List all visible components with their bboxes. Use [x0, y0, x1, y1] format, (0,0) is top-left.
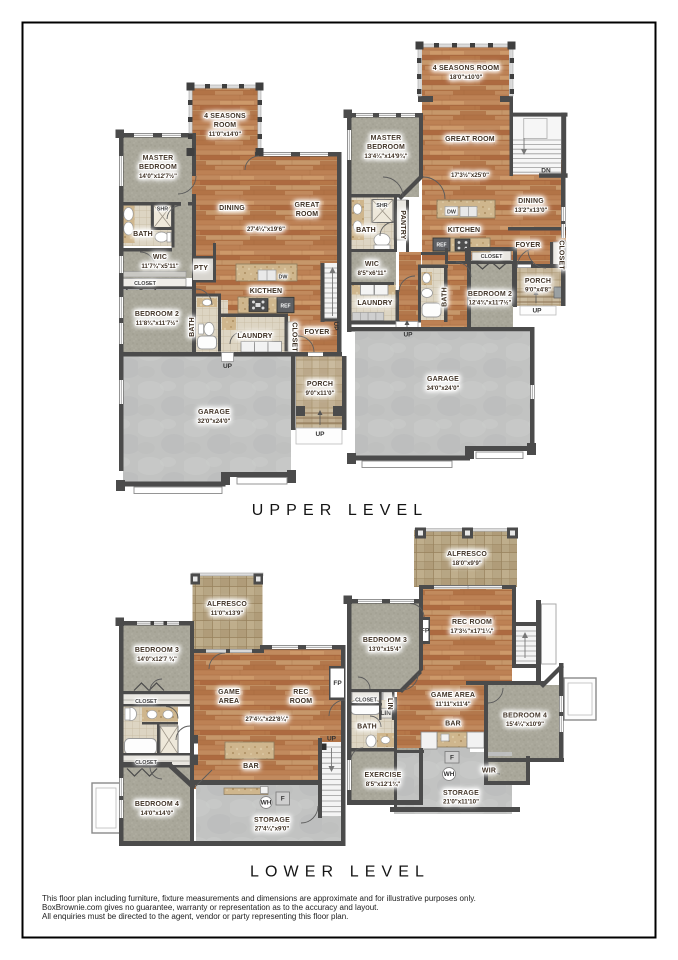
svg-text:BoxBrownie.com gives no guaran: BoxBrownie.com gives no guarantee, warra…	[42, 903, 379, 912]
svg-text:STORAGE: STORAGE	[254, 817, 290, 824]
svg-text:PANTRY: PANTRY	[399, 210, 406, 239]
svg-text:KITCHEN: KITCHEN	[448, 227, 481, 234]
svg-text:LAUNDRY: LAUNDRY	[237, 333, 272, 340]
svg-text:15'4¼"x10'9": 15'4¼"x10'9"	[506, 721, 544, 728]
svg-text:CLOSET: CLOSET	[558, 240, 565, 270]
svg-text:GAME: GAME	[218, 689, 240, 696]
svg-text:CLOSET: CLOSET	[135, 699, 158, 705]
svg-text:MASTER: MASTER	[371, 135, 402, 142]
svg-text:AREA: AREA	[219, 698, 240, 705]
svg-text:BEDROOM: BEDROOM	[139, 164, 177, 171]
svg-text:All enquiries must be directed: All enquiries must be directed to the ag…	[42, 912, 348, 921]
svg-text:BAR: BAR	[445, 721, 461, 728]
svg-text:BEDROOM 4: BEDROOM 4	[503, 713, 547, 720]
svg-text:UP: UP	[532, 308, 542, 315]
svg-text:CLOSET: CLOSET	[134, 281, 157, 287]
svg-text:8'5"x12'1¾": 8'5"x12'1¾"	[366, 781, 401, 788]
svg-text:F: F	[281, 796, 285, 803]
svg-text:13'4¼"x14'9¾": 13'4¼"x14'9¾"	[364, 153, 407, 160]
svg-text:UP: UP	[332, 321, 339, 331]
svg-text:DN: DN	[541, 168, 551, 175]
svg-text:27'4¼"x22'8¼": 27'4¼"x22'8¼"	[245, 716, 288, 723]
svg-text:DINING: DINING	[219, 205, 245, 212]
svg-text:DINING: DINING	[518, 198, 544, 205]
svg-text:PORCH: PORCH	[307, 381, 333, 388]
svg-text:SHR: SHR	[376, 203, 387, 209]
svg-text:BATH: BATH	[442, 287, 449, 307]
svg-text:13'0"x15'4": 13'0"x15'4"	[369, 646, 402, 653]
svg-text:18'0"x10'0": 18'0"x10'0"	[450, 74, 483, 81]
svg-text:BEDROOM 4: BEDROOM 4	[135, 801, 179, 808]
svg-text:17'3½"x17'1¼": 17'3½"x17'1¼"	[450, 628, 493, 635]
svg-text:4 SEASONS ROOM: 4 SEASONS ROOM	[433, 65, 500, 72]
svg-text:WH: WH	[444, 771, 455, 778]
svg-text:CLOSET: CLOSET	[355, 698, 378, 704]
svg-text:KICTHEN: KICTHEN	[250, 288, 283, 295]
svg-text:11'11"x11'4": 11'11"x11'4"	[435, 701, 470, 708]
svg-text:UP: UP	[223, 363, 233, 370]
svg-text:4 SEASONS: 4 SEASONS	[204, 113, 246, 120]
svg-text:11'0"x14'0": 11'0"x14'0"	[209, 131, 242, 138]
svg-text:21'0"x11'10": 21'0"x11'10"	[443, 799, 479, 806]
svg-text:This floor plan including furn: This floor plan including furniture, fix…	[42, 894, 476, 903]
svg-text:BEDROOM 3: BEDROOM 3	[135, 647, 179, 654]
svg-text:ROOM: ROOM	[296, 211, 319, 218]
svg-text:GREAT ROOM: GREAT ROOM	[445, 136, 495, 143]
svg-text:LIN: LIN	[380, 710, 391, 717]
svg-text:18'0"x9'9": 18'0"x9'9"	[452, 560, 482, 567]
svg-text:CLOSET: CLOSET	[481, 254, 504, 260]
svg-text:F: F	[450, 755, 454, 762]
svg-text:ALFRESCO: ALFRESCO	[207, 601, 247, 608]
svg-text:14'0"x14'0": 14'0"x14'0"	[141, 810, 174, 817]
svg-text:LAUNDRY: LAUNDRY	[357, 300, 392, 307]
svg-text:12'4¾"x11'7½": 12'4¾"x11'7½"	[469, 300, 512, 307]
svg-text:UP: UP	[315, 431, 325, 438]
svg-text:STORAGE: STORAGE	[443, 790, 479, 797]
svg-text:BATH: BATH	[133, 231, 153, 238]
svg-text:32'0"x24'0": 32'0"x24'0"	[198, 418, 231, 425]
svg-text:11'8¾"x11'7½": 11'8¾"x11'7½"	[136, 320, 179, 327]
svg-text:BATH: BATH	[357, 724, 377, 731]
svg-text:DW: DW	[447, 210, 457, 216]
svg-text:ALFRESCO: ALFRESCO	[447, 551, 487, 558]
svg-text:ROOM: ROOM	[214, 122, 237, 129]
svg-text:34'0"x24'0": 34'0"x24'0"	[427, 385, 460, 392]
svg-text:SHR: SHR	[157, 207, 168, 213]
svg-text:BEDROOM 3: BEDROOM 3	[363, 637, 407, 644]
svg-text:11'7¾"x5'11": 11'7¾"x5'11"	[141, 263, 178, 270]
svg-text:BATH: BATH	[189, 317, 196, 337]
svg-text:PTY: PTY	[194, 265, 208, 272]
svg-text:9'0"x11'0": 9'0"x11'0"	[305, 390, 334, 397]
svg-text:BAR: BAR	[243, 763, 259, 770]
svg-text:WIC: WIC	[153, 254, 167, 261]
svg-text:UP: UP	[327, 736, 337, 743]
svg-text:REF: REF	[437, 243, 447, 249]
svg-text:BEDROOM 2: BEDROOM 2	[468, 291, 512, 298]
svg-text:WIR: WIR	[482, 768, 496, 775]
svg-text:8'5"x6'11": 8'5"x6'11"	[357, 270, 386, 277]
svg-text:27'4¼"x19'6": 27'4¼"x19'6"	[247, 226, 285, 233]
svg-text:BEDROOM: BEDROOM	[367, 144, 405, 151]
svg-text:11'0"x13'9": 11'0"x13'9"	[211, 610, 244, 617]
svg-text:MASTER: MASTER	[143, 155, 174, 162]
svg-text:FOYER: FOYER	[304, 329, 329, 336]
svg-text:GARAGE: GARAGE	[198, 409, 230, 416]
svg-text:BATH: BATH	[356, 227, 376, 234]
svg-text:GREAT: GREAT	[295, 202, 321, 209]
svg-text:27'4¼"x9'0": 27'4¼"x9'0"	[255, 826, 290, 833]
svg-text:CLOSET: CLOSET	[291, 322, 298, 352]
svg-text:UP: UP	[403, 332, 413, 339]
svg-text:14'0"x12'7½": 14'0"x12'7½"	[139, 173, 177, 180]
svg-text:9'0"x4'8": 9'0"x4'8"	[525, 287, 551, 294]
svg-text:BEDROOM 2: BEDROOM 2	[135, 311, 179, 318]
svg-text:REC: REC	[293, 689, 308, 696]
svg-text:17'3½"x25'0": 17'3½"x25'0"	[451, 172, 489, 179]
svg-text:EXERCISE: EXERCISE	[365, 772, 402, 779]
svg-text:ROOM: ROOM	[290, 698, 313, 705]
svg-text:FOYER: FOYER	[515, 242, 540, 249]
svg-text:UPPER LEVEL: UPPER LEVEL	[252, 502, 428, 519]
svg-text:REF: REF	[281, 304, 291, 310]
svg-text:14'0"x12'7 ¾": 14'0"x12'7 ¾"	[137, 656, 177, 663]
svg-text:CLOSET: CLOSET	[135, 760, 158, 766]
svg-text:DW: DW	[279, 275, 289, 281]
svg-text:GAME AREA: GAME AREA	[431, 692, 475, 699]
svg-text:LOWER LEVEL: LOWER LEVEL	[250, 864, 430, 881]
svg-text:PORCH: PORCH	[525, 278, 551, 285]
svg-text:FP: FP	[333, 680, 342, 687]
svg-text:WH: WH	[261, 800, 272, 807]
svg-text:LIN: LIN	[386, 698, 393, 710]
svg-text:GARAGE: GARAGE	[427, 376, 459, 383]
svg-text:13'2"x13'0": 13'2"x13'0"	[515, 207, 548, 214]
svg-text:WIC: WIC	[365, 261, 379, 268]
svg-text:REC ROOM: REC ROOM	[452, 619, 492, 626]
